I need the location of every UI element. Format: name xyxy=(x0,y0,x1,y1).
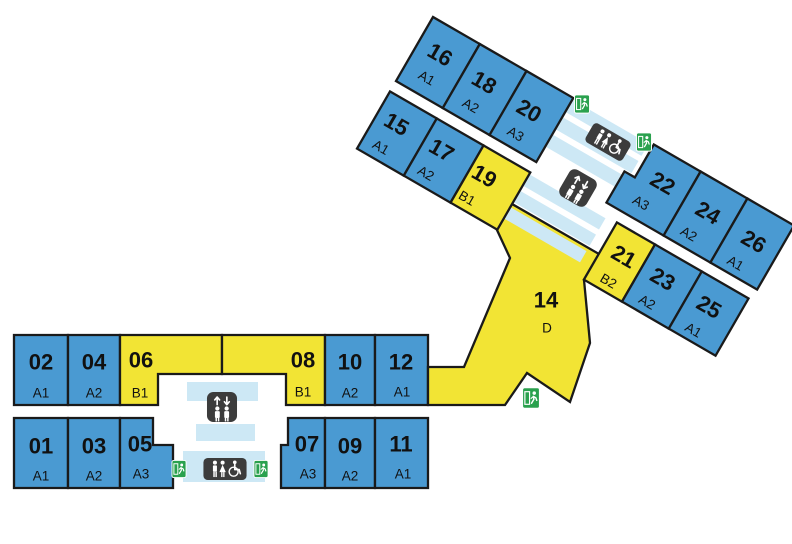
room-14-code: D xyxy=(542,321,552,336)
walkway-band xyxy=(196,424,255,441)
room-05-code: A3 xyxy=(133,467,150,482)
exit-icon xyxy=(574,95,589,113)
room-03-code: A2 xyxy=(86,469,103,484)
exit-icon-glyph xyxy=(574,95,589,113)
room-14-number: 14 xyxy=(534,288,559,313)
room-11-code: A1 xyxy=(395,467,412,482)
floor-plan-svg: 02A104A206B108B110A212A101A103A205A307A3… xyxy=(0,0,792,544)
room-09-number: 09 xyxy=(338,434,362,459)
room-04-code: A2 xyxy=(86,386,103,401)
exit-icon xyxy=(254,460,268,477)
room-05-number: 05 xyxy=(128,432,152,457)
exit-icon-glyph xyxy=(254,460,268,477)
exit-icon xyxy=(523,388,540,409)
main-wing-group: 02A104A206B108B110A212A101A103A205A307A3… xyxy=(14,204,599,488)
exit-icon-glyph xyxy=(636,133,651,151)
room-07-code: A3 xyxy=(300,467,317,482)
restroom-icon-glyph xyxy=(203,458,246,480)
room-08-number: 08 xyxy=(291,348,315,373)
restroom-icon xyxy=(203,458,246,480)
elevator-icon-glyph xyxy=(207,392,237,422)
room-07-number: 07 xyxy=(295,432,319,457)
room-01-code: A1 xyxy=(33,469,50,484)
room-06-number: 06 xyxy=(129,348,153,373)
room-11-number: 11 xyxy=(389,432,412,457)
room-12-number: 12 xyxy=(389,350,413,375)
exit-icon-glyph xyxy=(523,388,540,409)
room-09-code: A2 xyxy=(342,469,359,484)
room-03-number: 03 xyxy=(82,434,106,459)
room-04-number: 04 xyxy=(82,350,107,375)
exit-icon xyxy=(636,133,651,151)
exit-icon-glyph xyxy=(172,460,186,477)
floor-plan: 02A104A206B108B110A212A101A103A205A307A3… xyxy=(0,0,792,544)
room-01-number: 01 xyxy=(29,434,53,459)
room-08-code: B1 xyxy=(295,385,312,400)
room-12-code: A1 xyxy=(394,385,411,400)
room-10-code: A2 xyxy=(342,386,359,401)
room-10-number: 10 xyxy=(338,350,362,375)
room-06-code: B1 xyxy=(132,386,149,401)
elevator-icon xyxy=(207,392,237,422)
room-02-number: 02 xyxy=(29,350,53,375)
room-02-code: A1 xyxy=(33,386,50,401)
exit-icon xyxy=(172,460,186,477)
